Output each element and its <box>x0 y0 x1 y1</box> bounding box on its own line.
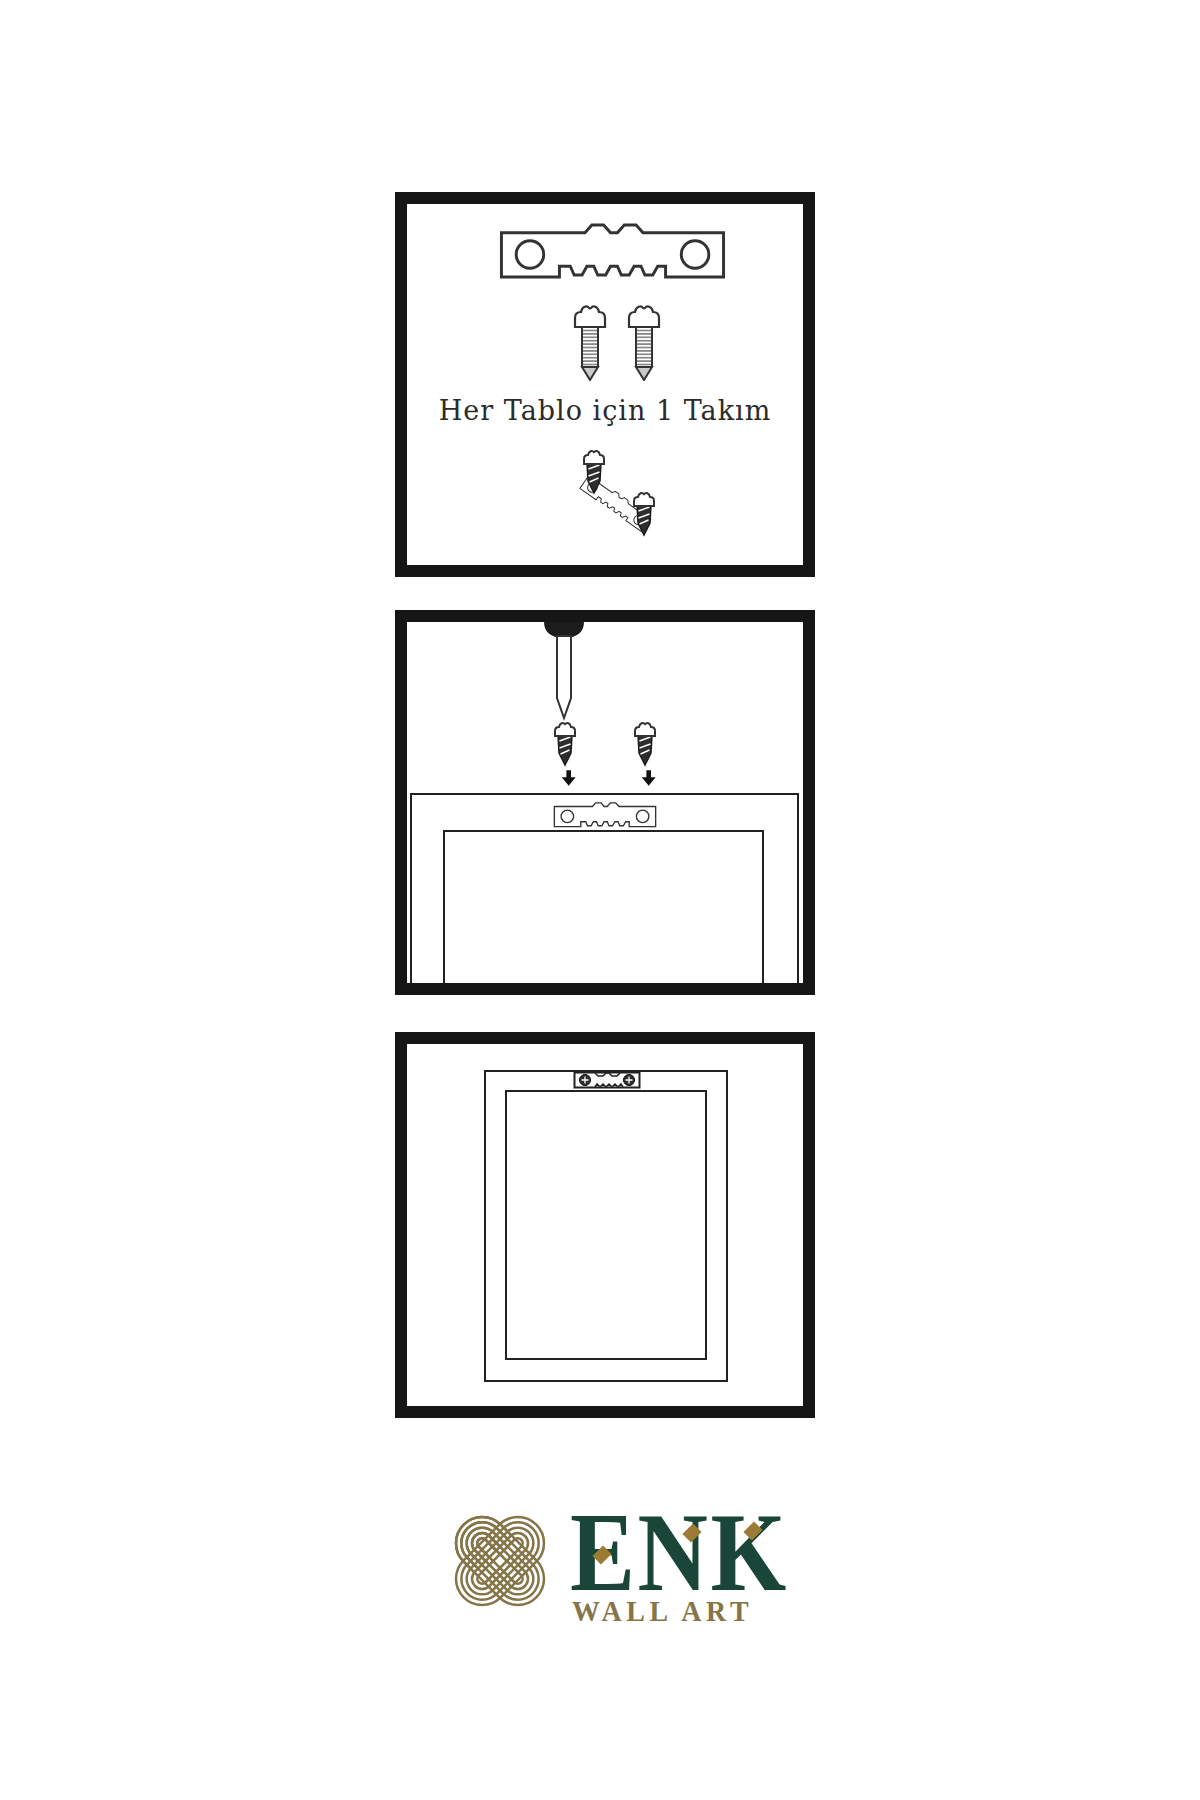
sawtooth-hanger-icon <box>497 223 728 280</box>
frame-back-inner-outline <box>443 830 764 983</box>
brand-subtitle: WALL ART <box>572 1594 753 1628</box>
down-arrow-icon <box>641 768 661 788</box>
frame-inner-outline <box>505 1090 707 1360</box>
step-2-panel <box>395 610 815 995</box>
step-3-panel <box>395 1032 815 1418</box>
dark-screw-icon <box>631 722 659 768</box>
wall-nail-icon <box>540 622 588 722</box>
screw-icon <box>572 305 608 381</box>
screw-icon <box>626 305 662 381</box>
kit-caption: Her Tablo için 1 Takım <box>407 395 803 426</box>
dark-screw-icon <box>631 492 657 538</box>
mounted-hanger-with-screws-icon <box>573 1071 641 1089</box>
step-1-panel: Her Tablo için 1 Takım <box>395 192 815 577</box>
instruction-sheet: Her Tablo için 1 Takım <box>0 0 1200 1800</box>
down-arrow-icon <box>561 768 581 788</box>
mounted-sawtooth-hanger-icon <box>553 802 657 828</box>
knot-logo-icon <box>437 1497 563 1625</box>
dark-screw-icon <box>581 450 607 496</box>
dark-screw-icon <box>551 722 579 768</box>
